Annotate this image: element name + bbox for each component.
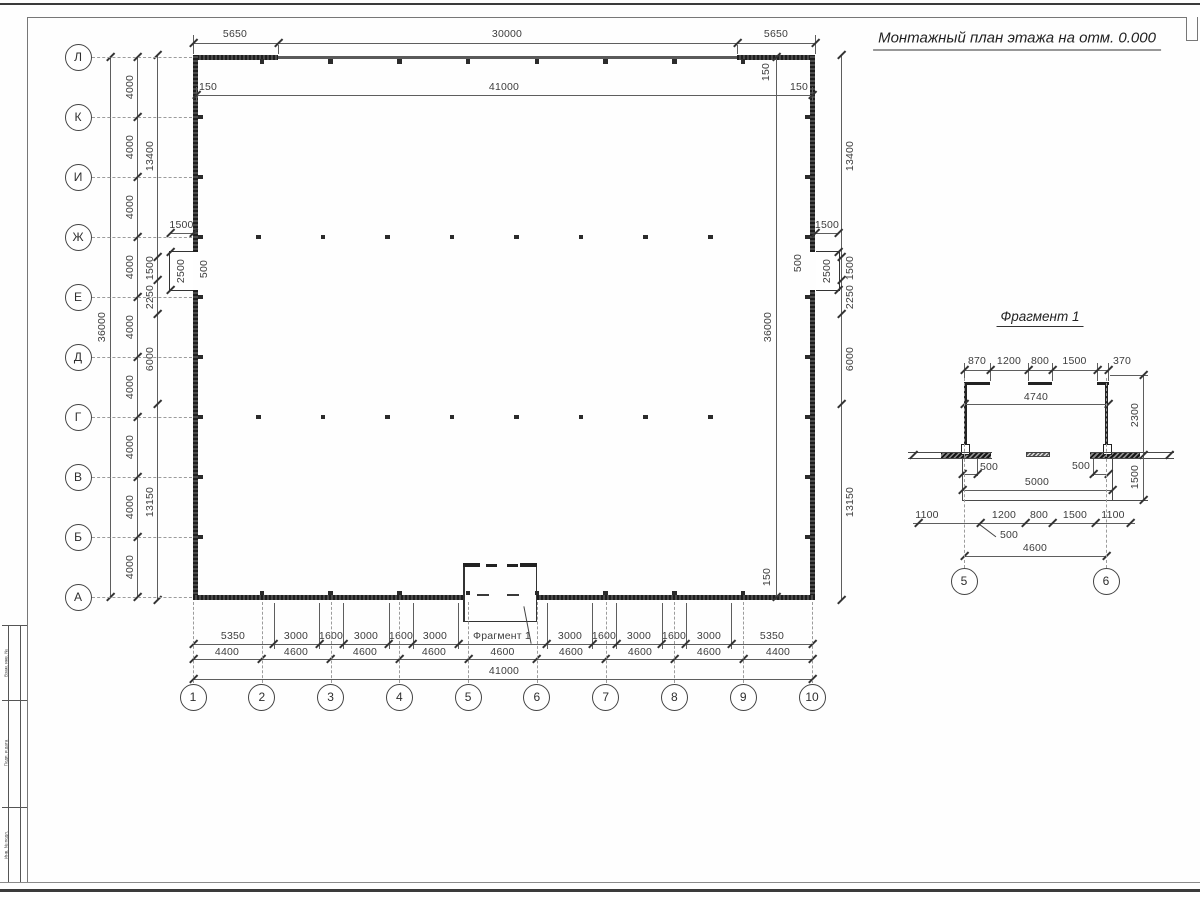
- axis-line: [1106, 378, 1107, 568]
- gate-dash: [477, 594, 489, 597]
- line: [8, 625, 9, 882]
- line: [157, 55, 158, 600]
- line: [1112, 458, 1113, 501]
- dim-label: 30000: [492, 28, 522, 40]
- line: [1028, 363, 1029, 381]
- dim-label: 1500: [1062, 355, 1086, 367]
- axis-circle-col: 4: [386, 684, 413, 711]
- axis-line: [537, 602, 538, 683]
- axis-circle-col: 5: [455, 684, 482, 711]
- axis-circle-row: Е: [65, 284, 92, 311]
- dim-label: 13400: [144, 141, 156, 171]
- wall-left-upper: [193, 55, 198, 252]
- column-mark: [514, 235, 519, 240]
- dim-label: 3000: [354, 630, 378, 642]
- axis-circle-row: Л: [65, 44, 92, 71]
- dim-label: 3000: [558, 630, 582, 642]
- column-mark: [805, 475, 810, 480]
- wall-bottom-left: [193, 595, 463, 600]
- column-mark: [708, 235, 713, 240]
- line: [27, 17, 1186, 18]
- column-mark: [260, 591, 265, 596]
- line: [193, 644, 812, 645]
- dim-label: 36000: [762, 312, 774, 342]
- column-mark: [603, 59, 608, 64]
- column-mark: [708, 415, 713, 420]
- column-mark: [643, 235, 648, 240]
- axis-circle-row: А: [65, 584, 92, 611]
- dim-label: 4400: [215, 646, 239, 658]
- dim-label: 150: [761, 568, 773, 586]
- dim-label: 41000: [489, 81, 519, 93]
- axis-circle-col: 7: [592, 684, 619, 711]
- dim-label: 4000: [124, 375, 136, 399]
- frag-500-leader: [979, 524, 997, 538]
- dim-label: 4600: [422, 646, 446, 658]
- axis-line: [92, 177, 192, 178]
- column-mark: [579, 235, 584, 240]
- gate-dash: [507, 594, 519, 597]
- line: [0, 889, 1200, 892]
- line: [2, 625, 27, 626]
- column-mark: [805, 415, 810, 420]
- dim-label: 5650: [223, 28, 247, 40]
- dim-label: 1500: [1129, 465, 1141, 489]
- line: [20, 625, 21, 882]
- dim-label: 4000: [124, 75, 136, 99]
- axis-line: [92, 477, 192, 478]
- axis-circle-col: 8: [661, 684, 688, 711]
- dim-label: 1200: [992, 509, 1016, 521]
- column-mark: [260, 59, 265, 64]
- axis-line: [674, 602, 675, 683]
- dim-label: 4600: [1023, 542, 1047, 554]
- fragment-title: Фрагмент 1: [997, 309, 1084, 327]
- column-mark: [805, 115, 810, 120]
- dim-label: 13400: [844, 141, 856, 171]
- dim-label: 4000: [124, 135, 136, 159]
- line: [1143, 375, 1144, 500]
- dim-label: 4000: [124, 435, 136, 459]
- dim-label: 2250: [844, 284, 856, 308]
- line: [278, 45, 279, 54]
- line: [193, 43, 815, 44]
- column-mark: [397, 591, 402, 596]
- dim-label: 4000: [124, 495, 136, 519]
- dim-label: 150: [199, 81, 217, 93]
- line: [962, 458, 963, 501]
- dim-label: 150: [760, 63, 772, 81]
- axis-line: [193, 602, 194, 683]
- dim-label: 5350: [760, 630, 784, 642]
- line: [193, 679, 812, 680]
- axis-line: [92, 597, 192, 598]
- line: [0, 882, 1200, 883]
- column-mark: [805, 295, 810, 300]
- axis-circle-row: Г: [65, 404, 92, 431]
- line: [1052, 363, 1053, 381]
- dim-label: 13150: [844, 486, 856, 516]
- line: [1090, 452, 1174, 453]
- column-mark: [672, 591, 677, 596]
- column-mark: [198, 295, 203, 300]
- dim-label: 4600: [284, 646, 308, 658]
- line: [193, 35, 194, 54]
- gate-dash: [486, 564, 497, 568]
- axis-circle-row: В: [65, 464, 92, 491]
- column-mark: [741, 59, 746, 64]
- axis-line: [331, 602, 332, 683]
- axis-line: [92, 237, 192, 238]
- dim-label: 2500: [821, 259, 833, 283]
- line: [2, 807, 27, 808]
- dim-label: 4400: [766, 646, 790, 658]
- axis-line: [92, 417, 192, 418]
- column-mark: [535, 591, 540, 596]
- line: [737, 45, 738, 54]
- line: [1186, 17, 1187, 41]
- wall-top-middle: [278, 56, 737, 59]
- line: [962, 500, 1148, 501]
- axis-circle-col: 9: [730, 684, 757, 711]
- column-mark: [397, 59, 402, 64]
- line: [0, 3, 1200, 5]
- dim-label: 4600: [490, 646, 514, 658]
- column-mark: [579, 415, 584, 420]
- wall-top-left: [193, 55, 278, 60]
- axis-line: [92, 537, 192, 538]
- dim-label: 4600: [353, 646, 377, 658]
- line: [990, 363, 991, 381]
- dim-label: 4600: [697, 646, 721, 658]
- column-mark: [321, 415, 326, 420]
- line: [2, 700, 27, 701]
- column-mark: [805, 235, 810, 240]
- line: [815, 35, 816, 54]
- axis-circle-row: Ж: [65, 224, 92, 251]
- drawing-sheet: Монтажный план этажа на отм. 0.000 Фрагм…: [0, 0, 1200, 900]
- dim-label: 3000: [697, 630, 721, 642]
- axis-line: [399, 602, 400, 683]
- column-mark: [198, 475, 203, 480]
- dim-label: 1100: [915, 509, 938, 521]
- line: [193, 659, 812, 660]
- axis-line: [92, 357, 192, 358]
- axis-line: [468, 602, 469, 683]
- column-mark: [603, 591, 608, 596]
- dim-label: 3000: [627, 630, 651, 642]
- dim-label: 4000: [124, 195, 136, 219]
- column-mark: [328, 591, 333, 596]
- dim-label: 13150: [144, 486, 156, 516]
- column-mark: [741, 591, 746, 596]
- axis-line: [92, 117, 192, 118]
- line: [908, 458, 992, 459]
- dim-label: 5000: [1025, 476, 1049, 488]
- line: [964, 370, 1108, 371]
- line: [908, 452, 992, 453]
- column-mark: [805, 355, 810, 360]
- dim-label: 1200: [997, 355, 1021, 367]
- column-mark: [385, 415, 390, 420]
- line: [841, 55, 842, 600]
- dim-label: 6000: [144, 346, 156, 370]
- dim-label: 3000: [423, 630, 447, 642]
- wall-left-lower: [193, 290, 198, 600]
- line: [1108, 363, 1109, 381]
- dim-label: 4000: [124, 255, 136, 279]
- line: [27, 17, 28, 882]
- frag-axis-circle: 6: [1093, 568, 1120, 595]
- frag-top-middle: [1028, 382, 1052, 385]
- column-mark: [198, 415, 203, 420]
- axis-line: [812, 602, 813, 683]
- drawing-title: Монтажный план этажа на отм. 0.000: [873, 30, 1161, 51]
- column-mark: [450, 235, 455, 240]
- axis-circle-col: 2: [248, 684, 275, 711]
- dim-label: 2500: [175, 259, 187, 283]
- dim-label: 4600: [628, 646, 652, 658]
- axis-circle-row: К: [65, 104, 92, 131]
- column-mark: [256, 415, 261, 420]
- dim-label: 870: [968, 355, 986, 367]
- gate-left-jamb: [463, 563, 465, 622]
- gate-dash: [507, 564, 518, 568]
- column-mark: [643, 415, 648, 420]
- dim-label: 5350: [221, 630, 245, 642]
- axis-circle-col: 6: [523, 684, 550, 711]
- axis-circle-col: 3: [317, 684, 344, 711]
- column-mark: [198, 235, 203, 240]
- fragment-ref-label: Фрагмент 1: [473, 630, 531, 642]
- column-mark: [198, 115, 203, 120]
- gate-corner-right: [520, 563, 537, 567]
- axis-circle-row: И: [65, 164, 92, 191]
- axis-line: [606, 602, 607, 683]
- axis-line: [262, 602, 263, 683]
- line: [1090, 458, 1174, 459]
- dim-label: 6000: [844, 346, 856, 370]
- dim-label: 500: [1000, 529, 1018, 541]
- dim-label: 1100: [1101, 509, 1124, 521]
- column-mark: [466, 59, 471, 64]
- line: [1097, 363, 1098, 381]
- dim-label: 1500: [1063, 509, 1087, 521]
- dim-label: 4000: [124, 315, 136, 339]
- axis-circle-row: Д: [65, 344, 92, 371]
- frag-middle-pad: [1026, 452, 1050, 457]
- dim-label: 800: [1030, 509, 1048, 521]
- dim-label: 500: [198, 260, 210, 278]
- column-mark: [321, 235, 326, 240]
- wall-right-lower: [810, 290, 815, 600]
- column-mark: [385, 235, 390, 240]
- line: [110, 57, 111, 597]
- column-mark: [198, 175, 203, 180]
- dim-label: 500: [1072, 460, 1090, 472]
- column-mark: [198, 355, 203, 360]
- column-mark: [466, 591, 471, 596]
- line: [962, 490, 1112, 491]
- column-mark: [805, 535, 810, 540]
- axis-circle-col: 10: [799, 684, 826, 711]
- dim-label: 370: [1113, 355, 1131, 367]
- line: [1197, 17, 1198, 41]
- dim-label: 500: [980, 461, 998, 473]
- frag-top-flange-left: [964, 382, 990, 385]
- dim-label: 3000: [284, 630, 308, 642]
- axis-line: [92, 297, 192, 298]
- line: [964, 404, 1108, 405]
- column-mark: [198, 535, 203, 540]
- dim-label: 4600: [559, 646, 583, 658]
- axis-line: [743, 602, 744, 683]
- dim-label: 4000: [124, 555, 136, 579]
- column-mark: [805, 175, 810, 180]
- axis-line: [92, 57, 192, 58]
- dim-label: 150: [790, 81, 808, 93]
- column-mark: [328, 59, 333, 64]
- dim-label: 36000: [96, 312, 108, 342]
- column-mark: [514, 415, 519, 420]
- column-mark: [535, 59, 540, 64]
- line: [776, 57, 777, 597]
- line: [964, 556, 1106, 557]
- dim-label: 5650: [764, 28, 788, 40]
- dim-label: 800: [1031, 355, 1049, 367]
- dim-label: 41000: [489, 665, 519, 677]
- gate-corner-left: [463, 563, 480, 567]
- column-mark: [256, 235, 261, 240]
- dim-label: 500: [792, 254, 804, 272]
- axis-circle-col: 1: [180, 684, 207, 711]
- dim-label: 4740: [1024, 391, 1048, 403]
- line: [137, 57, 138, 597]
- dim-label: 2300: [1129, 403, 1141, 427]
- column-mark: [450, 415, 455, 420]
- axis-line: [964, 378, 965, 568]
- column-mark: [672, 59, 677, 64]
- frag-axis-circle: 5: [951, 568, 978, 595]
- line: [196, 95, 812, 96]
- axis-circle-row: Б: [65, 524, 92, 551]
